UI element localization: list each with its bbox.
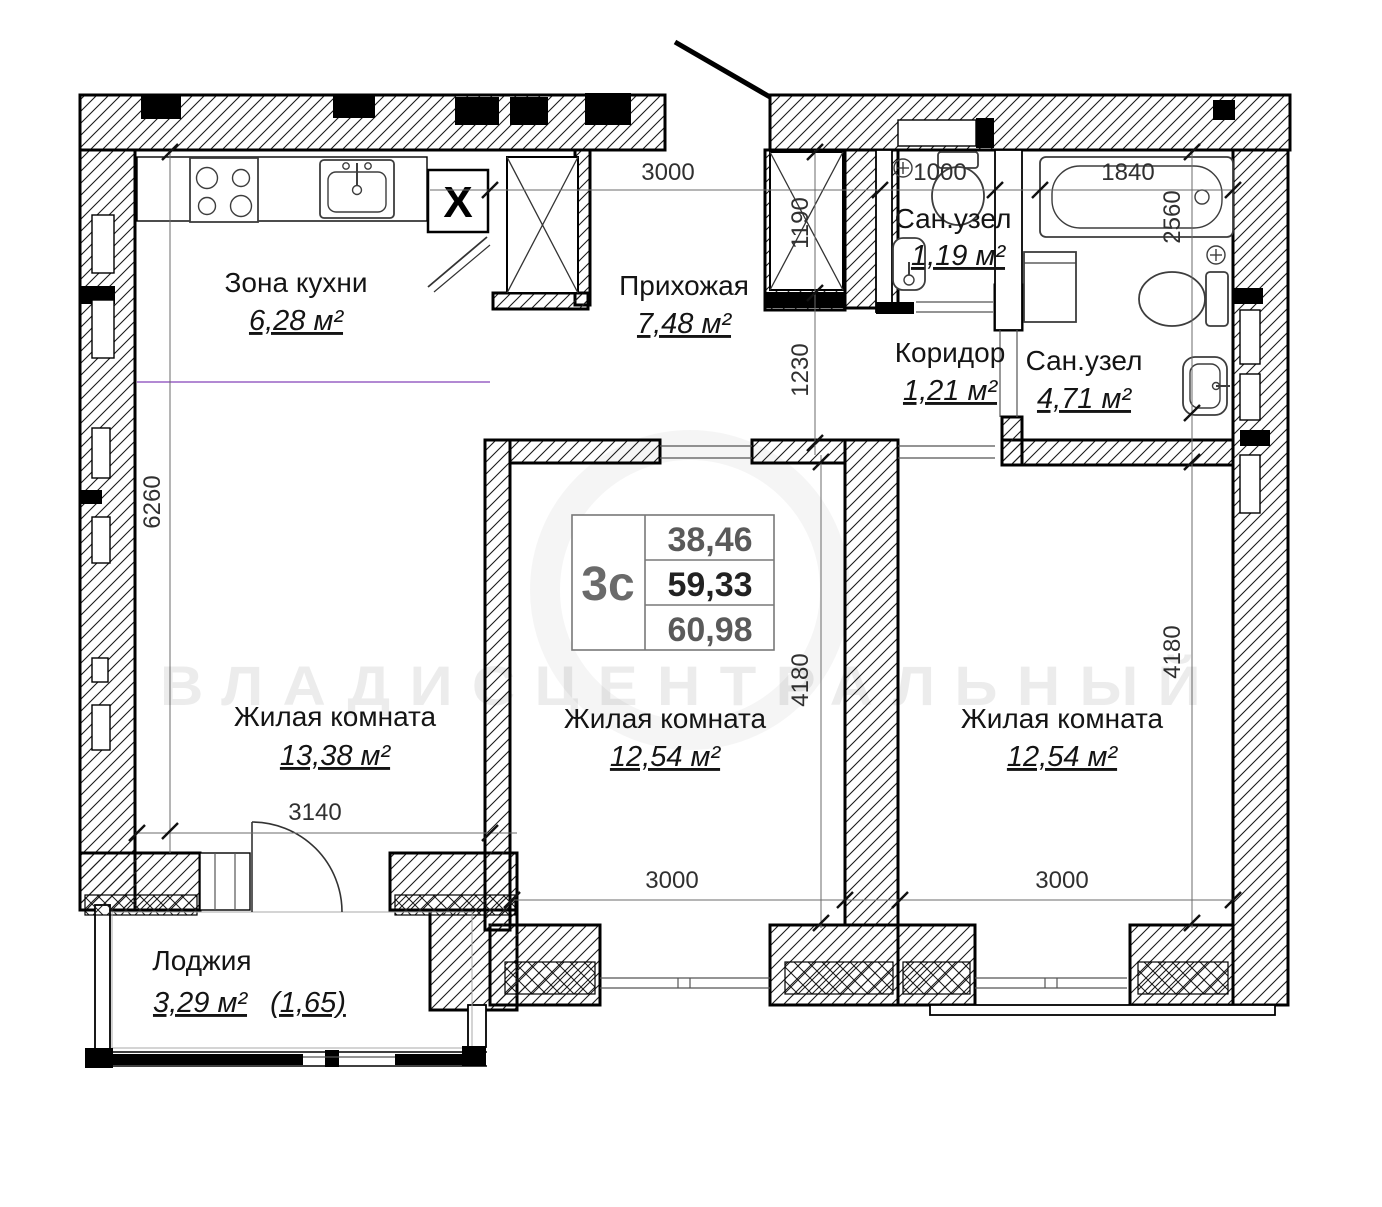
dim-living3-width: 3000 [1035, 867, 1088, 894]
loggia-door-arc [252, 822, 342, 912]
dim-left-wall: 6260 [139, 475, 166, 528]
floor-plan-drawing: X [0, 0, 1382, 1207]
room-area-corridor: 1,21 м² [903, 375, 998, 407]
room-area-kitchen: 6,28 м² [249, 305, 344, 337]
stove-icon [190, 158, 258, 222]
room-area-loggia-coefficient: (1,65) [270, 987, 346, 1019]
dim-living2-width: 3000 [645, 867, 698, 894]
dim-hall-width: 3000 [641, 159, 694, 186]
floor-plan-page: X [0, 0, 1382, 1207]
dim-entry-passage: 1230 [787, 343, 814, 396]
dim-living1-width: 3140 [288, 799, 341, 826]
dim-bathroom-depth: 2560 [1159, 190, 1186, 243]
room-area-wc-small: 1,19 м² [911, 240, 1006, 272]
room-area-loggia: 3,29 м² [153, 987, 248, 1019]
toilet-icon [1139, 272, 1228, 326]
room-area-living3: 12,54 м² [1007, 741, 1119, 773]
dim-bathtub: 1840 [1101, 159, 1154, 186]
dim-wc-small: 1000 [913, 159, 966, 186]
area-usable-value: 59,33 [667, 566, 752, 604]
room-label-kitchen: Зона кухни [225, 267, 368, 298]
kitchen-sink-icon [320, 160, 394, 218]
wardrobe-shaft-icon [507, 157, 578, 293]
vent-symbol: X [443, 178, 472, 227]
room-area-wc-big: 4,71 м² [1037, 383, 1132, 415]
room-label-hallway: Прихожая [619, 270, 749, 301]
dim-entry-niche: 1190 [787, 197, 814, 249]
washbasin-icon [1183, 357, 1230, 415]
room-label-wc-small: Сан.узел [895, 203, 1012, 234]
room-area-living2: 12,54 м² [610, 741, 722, 773]
plus-symbol [1207, 246, 1225, 264]
washing-machine-icon [1024, 252, 1076, 322]
room-label-corridor: Коридор [895, 337, 1006, 368]
plan-code: 3с [581, 558, 634, 611]
area-total-value: 60,98 [667, 611, 752, 649]
entry-direction-line [675, 42, 770, 97]
room-area-living1: 13,38 м² [280, 740, 392, 772]
watermark-text: ВЛАДИСЦЕНТРАЛЬНЫЙ [160, 654, 1220, 717]
room-label-wc-big: Сан.узел [1026, 345, 1143, 376]
vent-shaft-icon: X [428, 170, 488, 232]
area-living-value: 38,46 [667, 521, 752, 559]
apartment-spec-table: 3с 38,46 59,33 60,98 [572, 515, 774, 650]
room-area-hallway: 7,48 м² [637, 308, 732, 340]
room-label-loggia: Лоджия [152, 945, 251, 976]
kitchen-door-leaf [428, 237, 490, 292]
